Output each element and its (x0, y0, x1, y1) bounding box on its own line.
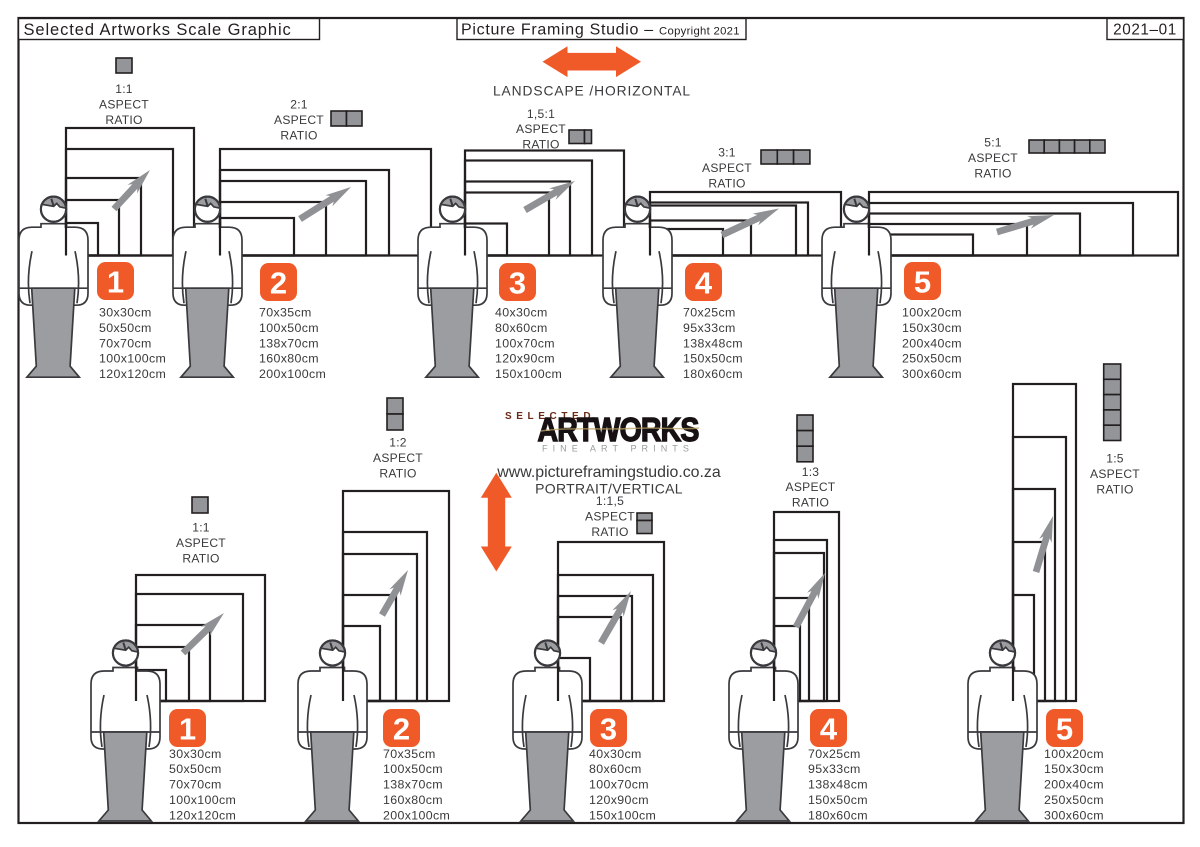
svg-text:ASPECT: ASPECT (373, 451, 423, 465)
svg-text:5:1: 5:1 (984, 136, 1002, 150)
svg-text:50x50cm: 50x50cm (169, 762, 222, 776)
svg-text:5: 5 (1056, 712, 1073, 747)
svg-text:40x30cm: 40x30cm (589, 747, 642, 761)
svg-text:150x30cm: 150x30cm (902, 321, 962, 335)
svg-text:95x33cm: 95x33cm (808, 762, 861, 776)
svg-text:2021–01: 2021–01 (1113, 22, 1177, 39)
svg-text:1:1,5: 1:1,5 (596, 494, 624, 508)
svg-text:ASPECT: ASPECT (176, 536, 226, 550)
svg-text:200x100cm: 200x100cm (259, 367, 326, 381)
svg-text:ASPECT: ASPECT (786, 480, 836, 494)
svg-text:ASPECT: ASPECT (968, 151, 1018, 165)
svg-text:2: 2 (393, 712, 410, 747)
svg-text:150x100cm: 150x100cm (495, 367, 562, 381)
svg-text:150x50cm: 150x50cm (808, 793, 868, 807)
svg-text:100x70cm: 100x70cm (589, 778, 649, 792)
svg-text:150x100cm: 150x100cm (589, 808, 656, 822)
svg-text:RATIO: RATIO (182, 551, 219, 565)
svg-text:80x60cm: 80x60cm (589, 762, 642, 776)
svg-text:70x25cm: 70x25cm (808, 747, 861, 761)
svg-text:120x120cm: 120x120cm (169, 808, 236, 822)
svg-text:150x30cm: 150x30cm (1044, 762, 1104, 776)
svg-text:120x90cm: 120x90cm (589, 793, 649, 807)
svg-text:4: 4 (695, 266, 713, 301)
svg-text:ASPECT: ASPECT (1090, 467, 1140, 481)
svg-text:138x48cm: 138x48cm (683, 336, 743, 350)
svg-text:RATIO: RATIO (974, 166, 1011, 180)
svg-text:1:1: 1:1 (115, 82, 133, 96)
svg-text:FINE ART PRINTS: FINE ART PRINTS (542, 444, 694, 454)
svg-text:ASPECT: ASPECT (585, 509, 635, 523)
svg-text:300x60cm: 300x60cm (902, 367, 962, 381)
svg-text:180x60cm: 180x60cm (808, 808, 868, 822)
svg-text:30x30cm: 30x30cm (99, 306, 152, 320)
svg-text:ASPECT: ASPECT (516, 122, 566, 136)
svg-text:1,5:1: 1,5:1 (527, 107, 555, 121)
svg-text:ASPECT: ASPECT (99, 97, 149, 111)
svg-text:300x60cm: 300x60cm (1044, 808, 1104, 822)
svg-text:2: 2 (270, 266, 287, 301)
svg-text:50x50cm: 50x50cm (99, 321, 152, 335)
svg-text:RATIO: RATIO (792, 496, 829, 510)
svg-text:ASPECT: ASPECT (274, 113, 324, 127)
svg-text:80x60cm: 80x60cm (495, 321, 548, 335)
svg-text:40x30cm: 40x30cm (495, 306, 548, 320)
svg-text:100x20cm: 100x20cm (1044, 747, 1104, 761)
svg-text:100x50cm: 100x50cm (259, 321, 319, 335)
svg-text:2:1: 2:1 (290, 98, 308, 112)
svg-text:138x70cm: 138x70cm (259, 336, 319, 350)
svg-text:70x35cm: 70x35cm (383, 747, 436, 761)
svg-text:200x100cm: 200x100cm (383, 808, 450, 822)
svg-text:3: 3 (600, 712, 617, 747)
svg-text:100x70cm: 100x70cm (495, 336, 555, 350)
svg-text:100x20cm: 100x20cm (902, 306, 962, 320)
svg-text:200x40cm: 200x40cm (902, 336, 962, 350)
svg-text:138x48cm: 138x48cm (808, 778, 868, 792)
svg-text:Selected Artworks Scale Graphi: Selected Artworks Scale Graphic (24, 21, 292, 39)
svg-text:70x25cm: 70x25cm (683, 306, 736, 320)
svg-text:5: 5 (914, 265, 931, 300)
svg-text:1: 1 (179, 712, 196, 747)
svg-text:4: 4 (820, 712, 838, 747)
svg-text:150x50cm: 150x50cm (683, 352, 743, 366)
svg-text:1: 1 (107, 265, 124, 300)
svg-text:30x30cm: 30x30cm (169, 747, 222, 761)
svg-text:3:1: 3:1 (718, 146, 736, 160)
svg-text:180x60cm: 180x60cm (683, 367, 743, 381)
svg-text:250x50cm: 250x50cm (1044, 793, 1104, 807)
svg-text:RATIO: RATIO (105, 113, 142, 127)
svg-text:70x35cm: 70x35cm (259, 306, 312, 320)
svg-text:120x120cm: 120x120cm (99, 367, 166, 381)
svg-text:RATIO: RATIO (708, 176, 745, 190)
svg-text:3: 3 (509, 266, 526, 301)
svg-text:RATIO: RATIO (1096, 482, 1133, 496)
svg-text:95x33cm: 95x33cm (683, 321, 736, 335)
svg-text:RATIO: RATIO (591, 525, 628, 539)
svg-text:RATIO: RATIO (379, 466, 416, 480)
svg-text:1:1: 1:1 (192, 521, 210, 535)
svg-text:100x50cm: 100x50cm (383, 762, 443, 776)
svg-text:1:3: 1:3 (802, 465, 820, 479)
svg-text:LANDSCAPE /HORIZONTAL: LANDSCAPE /HORIZONTAL (493, 84, 691, 99)
svg-text:100x100cm: 100x100cm (169, 793, 236, 807)
svg-text:70x70cm: 70x70cm (99, 336, 152, 350)
svg-text:160x80cm: 160x80cm (259, 352, 319, 366)
svg-text:100x100cm: 100x100cm (99, 352, 166, 366)
svg-text:www.pictureframingstudio.co.za: www.pictureframingstudio.co.za (496, 464, 721, 481)
svg-text:ASPECT: ASPECT (702, 161, 752, 175)
svg-text:160x80cm: 160x80cm (383, 793, 443, 807)
svg-text:250x50cm: 250x50cm (902, 352, 962, 366)
svg-text:70x70cm: 70x70cm (169, 778, 222, 792)
svg-text:120x90cm: 120x90cm (495, 352, 555, 366)
svg-text:1:5: 1:5 (1106, 452, 1124, 466)
svg-text:RATIO: RATIO (280, 128, 317, 142)
svg-text:1:2: 1:2 (389, 436, 407, 450)
svg-text:200x40cm: 200x40cm (1044, 778, 1104, 792)
svg-text:138x70cm: 138x70cm (383, 778, 443, 792)
